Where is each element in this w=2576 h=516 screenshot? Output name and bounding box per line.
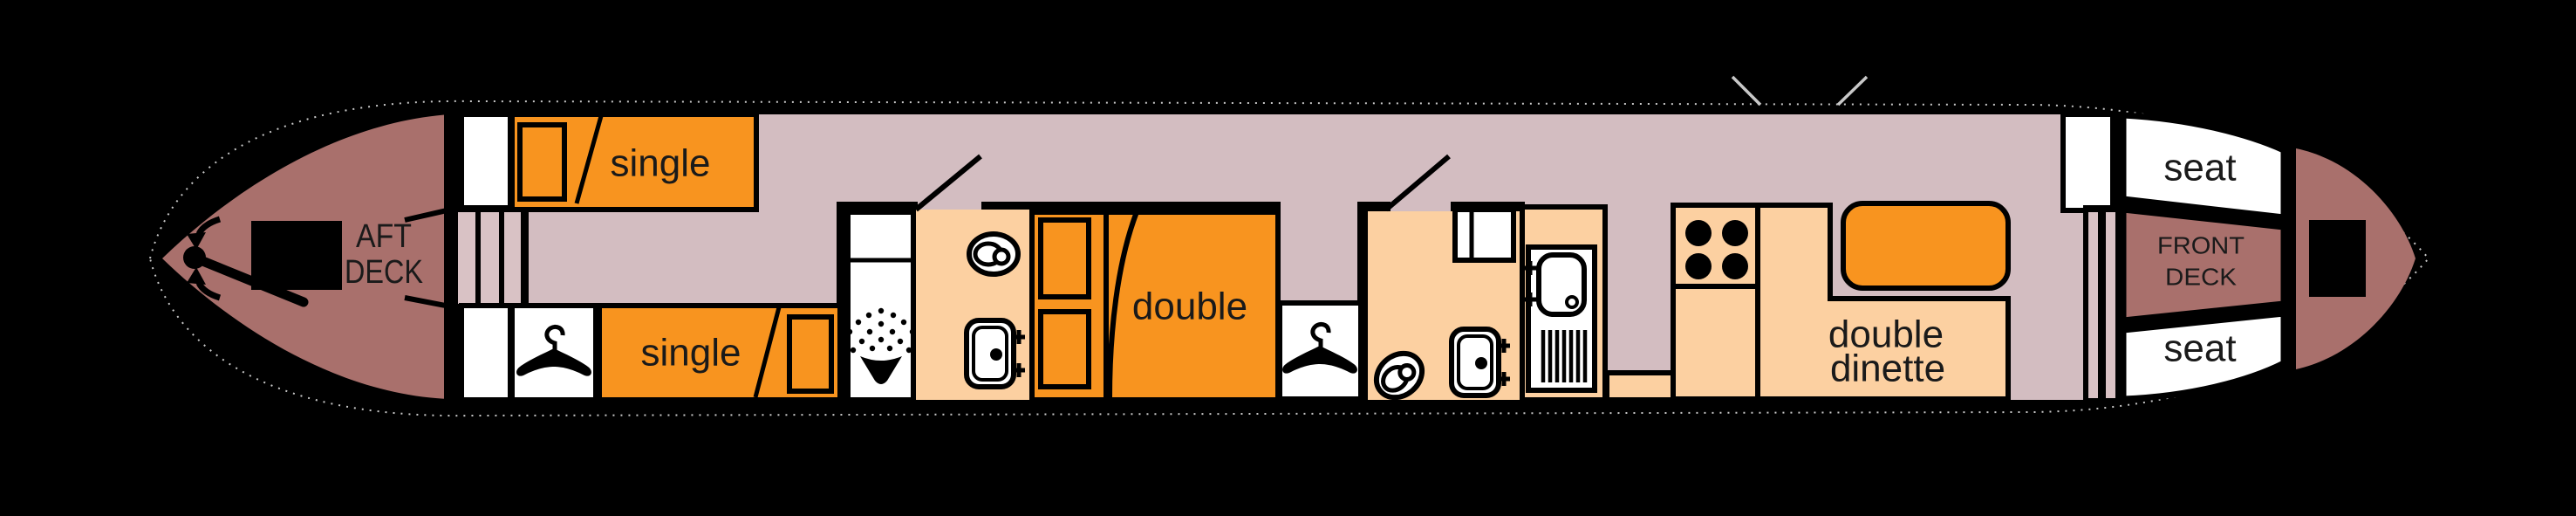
front-deck-label-line1: FRONT bbox=[2157, 232, 2245, 259]
aft-bulkhead bbox=[444, 108, 458, 408]
seat-top-label: seat bbox=[2163, 147, 2236, 189]
toilet-icon bbox=[969, 234, 1018, 274]
single-bed-top-label: single bbox=[611, 142, 711, 185]
cabin: single single bbox=[444, 108, 2123, 408]
bow-locker bbox=[2309, 220, 2366, 297]
kitchen-sink-icon bbox=[1523, 247, 1595, 390]
single-bed-bottom: single bbox=[599, 306, 840, 400]
cupboard-aft-top bbox=[461, 114, 510, 208]
wardrobe-mid bbox=[1280, 303, 1361, 399]
engine-hatch bbox=[251, 221, 342, 290]
aft-deck-label-line2: DECK bbox=[345, 254, 423, 291]
bow-bulkhead bbox=[2281, 144, 2296, 376]
galley-sink-unit bbox=[1522, 207, 1605, 400]
steps-bow-icon bbox=[2083, 205, 2123, 402]
front-deck-label-line2: DECK bbox=[2165, 264, 2237, 291]
double-bedroom: double bbox=[1032, 212, 1278, 400]
drainer-bars bbox=[1543, 330, 1585, 382]
single-bed-bottom-label: single bbox=[641, 332, 741, 375]
dinette-table bbox=[1843, 203, 2008, 288]
page: AFT DECK s bbox=[0, 0, 2576, 516]
double-bed-label: double bbox=[1132, 286, 1247, 328]
narrowboat-floor-plan: AFT DECK s bbox=[0, 0, 2576, 516]
wall-cupboards bbox=[1455, 210, 1513, 260]
wardrobe-aft bbox=[512, 306, 596, 400]
aft-deck-label-line1: AFT bbox=[356, 218, 412, 255]
single-bed-top: single bbox=[512, 114, 756, 210]
dinette-label-line2: dinette bbox=[1830, 347, 1945, 390]
kitchen-and-dinette: double dinette bbox=[1673, 203, 2008, 399]
cupboard-bow bbox=[2063, 114, 2113, 210]
cupboard-aft-bottom bbox=[461, 306, 510, 400]
counter-strip bbox=[1607, 373, 1673, 400]
shower-cubicle bbox=[847, 212, 915, 400]
steps-aft-icon bbox=[454, 203, 529, 310]
seat-bottom-label: seat bbox=[2163, 327, 2236, 370]
